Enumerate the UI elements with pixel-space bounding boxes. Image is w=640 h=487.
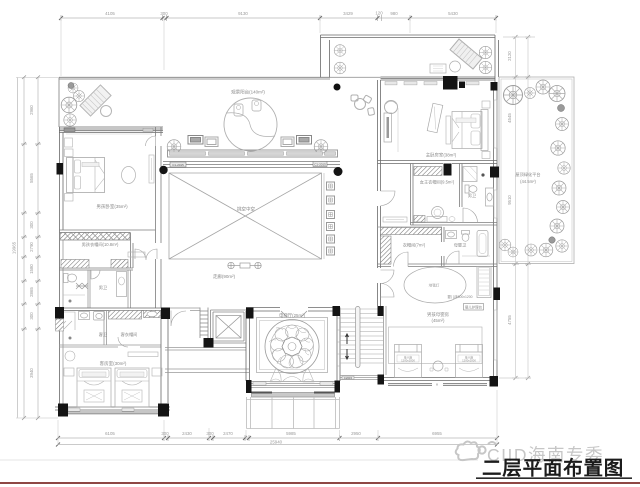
svg-text:观景阳台(140m²): 观景阳台(140m²) bbox=[231, 89, 265, 96]
svg-text:主卧房室(38m²): 主卧房室(38m²) bbox=[426, 152, 457, 159]
svg-text:6955: 6955 bbox=[432, 431, 442, 436]
svg-text:C2015: C2015 bbox=[344, 376, 353, 380]
svg-text:4105: 4105 bbox=[105, 11, 115, 16]
svg-text:(45m²): (45m²) bbox=[432, 318, 445, 323]
svg-text:2865: 2865 bbox=[29, 287, 34, 297]
svg-text:客卫: 客卫 bbox=[99, 331, 107, 338]
svg-text:5430: 5430 bbox=[448, 11, 458, 16]
svg-text:男孩卧室(35m²): 男孩卧室(35m²) bbox=[96, 203, 128, 210]
svg-text:300: 300 bbox=[160, 11, 168, 16]
svg-text:婴儿护理台: 婴儿护理台 bbox=[465, 305, 483, 310]
svg-text:3940: 3940 bbox=[29, 368, 34, 378]
svg-text:2950: 2950 bbox=[351, 431, 361, 436]
svg-text:9510: 9510 bbox=[507, 195, 512, 205]
svg-text:4755: 4755 bbox=[507, 315, 512, 325]
svg-text:5565: 5565 bbox=[29, 173, 34, 183]
svg-text:电梯厅(25m²): 电梯厅(25m²) bbox=[279, 312, 306, 319]
svg-text:衣帽间(7m²): 衣帽间(7m²) bbox=[403, 242, 426, 249]
svg-text:婴儿床600x1200: 婴儿床600x1200 bbox=[447, 294, 472, 299]
svg-text:1200x2000: 1200x2000 bbox=[401, 358, 415, 362]
svg-text:300: 300 bbox=[29, 312, 34, 320]
svg-text:男孩母婴房: 男孩母婴房 bbox=[427, 311, 450, 318]
svg-text:2120: 2120 bbox=[507, 51, 512, 61]
svg-text:19965: 19965 bbox=[12, 241, 17, 254]
svg-text:980: 980 bbox=[390, 11, 398, 16]
svg-text:2790: 2790 bbox=[29, 242, 34, 252]
svg-text:300: 300 bbox=[29, 221, 34, 229]
svg-text:25940: 25940 bbox=[270, 439, 283, 444]
svg-text:3429: 3429 bbox=[343, 11, 353, 16]
svg-text:屋顶绿化平台: 屋顶绿化平台 bbox=[515, 171, 540, 178]
svg-text:2960: 2960 bbox=[29, 105, 34, 115]
svg-text:C1-2015: C1-2015 bbox=[314, 163, 326, 167]
svg-text:1200x2000: 1200x2000 bbox=[462, 358, 476, 362]
svg-text:客衣帽间: 客衣帽间 bbox=[121, 331, 138, 338]
svg-text:300: 300 bbox=[161, 431, 169, 436]
svg-text:120: 120 bbox=[375, 11, 383, 16]
svg-text:6105: 6105 bbox=[105, 431, 115, 436]
svg-text:二层平面布置图: 二层平面布置图 bbox=[482, 457, 624, 480]
svg-text:挑空中空: 挑空中空 bbox=[237, 206, 255, 213]
svg-text:(44.5m²): (44.5m²) bbox=[520, 179, 536, 184]
svg-text:地毯灯: 地毯灯 bbox=[429, 283, 440, 288]
svg-text:C1-2015: C1-2015 bbox=[172, 163, 184, 167]
svg-text:1580: 1580 bbox=[29, 264, 34, 274]
svg-text:4545: 4545 bbox=[507, 113, 512, 123]
svg-text:客房室(30m²): 客房室(30m²) bbox=[100, 360, 127, 367]
svg-text:9130: 9130 bbox=[238, 11, 248, 16]
svg-text:300: 300 bbox=[206, 431, 214, 436]
svg-text:2470: 2470 bbox=[223, 431, 233, 436]
svg-text:5985: 5985 bbox=[286, 431, 296, 436]
svg-text:2430: 2430 bbox=[182, 431, 192, 436]
svg-text:女主衣帽间(9.5m²): 女主衣帽间(9.5m²) bbox=[420, 179, 455, 186]
svg-text:男孩衣帽间(10.8m²): 男孩衣帽间(10.8m²) bbox=[82, 241, 119, 248]
svg-text:走廊(90m²): 走廊(90m²) bbox=[213, 273, 236, 280]
